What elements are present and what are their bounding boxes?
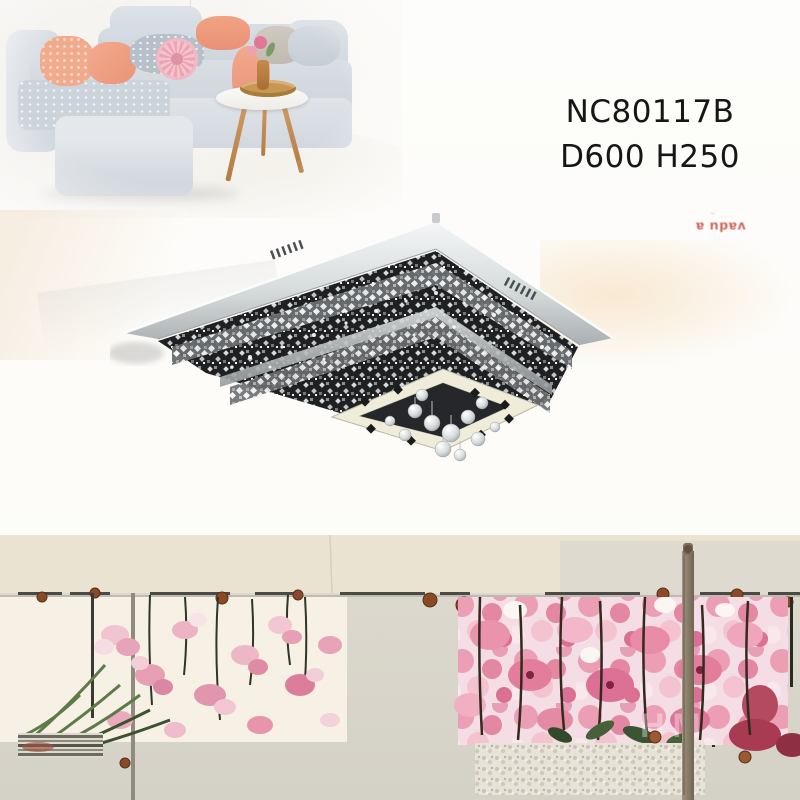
- wooden-pole: [682, 543, 694, 800]
- catalog-page: NC80117B D600 H250 ~ .. vadu a: [0, 0, 800, 800]
- pebble-patch: [475, 743, 705, 795]
- product-info: NC80117B D600 H250: [495, 90, 800, 180]
- flowers-right: HM: [454, 597, 800, 757]
- stacked-boards: [18, 733, 103, 758]
- photo-fade-overlay: [0, 0, 402, 218]
- stamp-text: vadu a: [695, 220, 745, 235]
- lamp-body: [110, 213, 613, 461]
- product-model-code: NC80117B: [495, 90, 800, 135]
- fence-stick: [91, 593, 94, 718]
- crystal-ceiling-lamp-photo: [110, 205, 630, 465]
- vent-slots-left: [270, 240, 304, 260]
- fence-stick: [790, 597, 793, 687]
- thin-pole: [131, 593, 135, 800]
- floral-mural-photo: HM: [0, 535, 800, 800]
- red-stamp-watermark: ~ .. vadu a: [681, 208, 758, 239]
- living-room-photo: [0, 0, 402, 218]
- product-dimensions: D600 H250: [495, 135, 800, 180]
